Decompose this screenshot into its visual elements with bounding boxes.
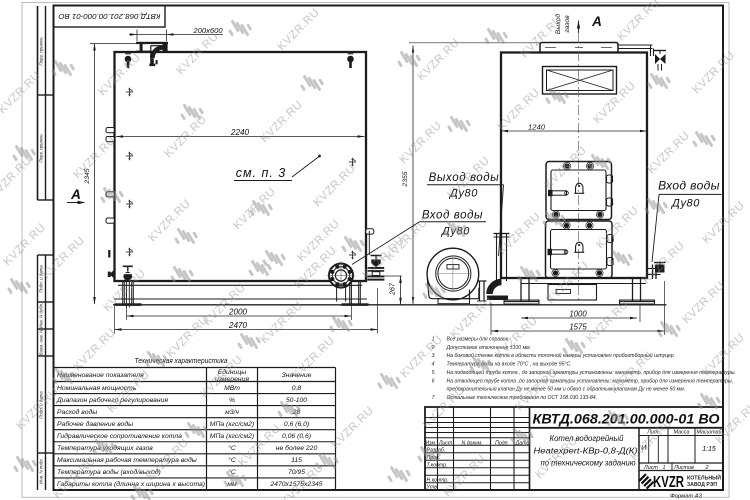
svg-text:Изм.: Изм. <box>425 441 436 447</box>
svg-text:м3/ч: м3/ч <box>225 409 239 416</box>
svg-text:°С: °С <box>228 444 236 452</box>
svg-text:0,06 (0,6): 0,06 (0,6) <box>282 433 311 440</box>
svg-text:газов: газов <box>564 15 571 33</box>
svg-text:1000: 1000 <box>569 310 587 319</box>
svg-text:Вход воды: Вход воды <box>422 210 483 222</box>
svg-text:Инв. N подл.: Инв. N подл. <box>39 458 44 484</box>
svg-text:6: 6 <box>432 378 435 384</box>
svg-text:2470: 2470 <box>228 321 248 330</box>
svg-text:А: А <box>70 187 81 202</box>
svg-text:5: 5 <box>432 370 435 376</box>
svg-text:1:15: 1:15 <box>702 446 716 453</box>
svg-text:Ду80: Ду80 <box>670 198 700 210</box>
svg-text:Перв. примен.: Перв. примен. <box>39 36 44 65</box>
svg-text:Взам. инв. N: Взам. инв. N <box>39 329 44 355</box>
svg-text:70/95: 70/95 <box>288 469 305 476</box>
svg-text:Н.контр.: Н.контр. <box>427 477 449 483</box>
svg-text:2240: 2240 <box>230 128 250 137</box>
svg-text:115: 115 <box>291 457 302 464</box>
svg-text:%: % <box>229 397 235 404</box>
svg-text:2000: 2000 <box>228 308 248 317</box>
svg-text:4: 4 <box>432 362 435 368</box>
svg-text:Гидравлическое сопротивление к: Гидравлическое сопротивление котла <box>57 432 182 440</box>
svg-text:КВТД.068.201.00.000-01 ВО: КВТД.068.201.00.000-01 ВО <box>58 12 160 21</box>
svg-text:N докум.: N докум. <box>462 441 483 447</box>
svg-text:МВт: МВт <box>224 385 240 392</box>
svg-text:KVZR: KVZR <box>653 474 684 491</box>
svg-text:ЗАВОД РЭП: ЗАВОД РЭП <box>687 482 717 488</box>
svg-text:МПа (кгс/см2): МПа (кгс/см2) <box>210 433 254 440</box>
svg-text:267: 267 <box>390 282 397 296</box>
svg-text:предохранительный клапан Ду н: предохранительный клапан Ду не менее 50 … <box>447 386 686 393</box>
svg-text:МПа (кгс/см2): МПа (кгс/см2) <box>210 421 254 428</box>
svg-text:Расход воды: Расход воды <box>57 408 97 416</box>
svg-text:0,6 (6,0): 0,6 (6,0) <box>284 421 309 428</box>
svg-text:Подп. и дата: Подп. и дата <box>39 265 44 293</box>
svg-text:не более 220: не более 220 <box>276 444 318 452</box>
svg-text:Вход воды: Вход воды <box>658 179 720 193</box>
svg-text:На подводящей трубе котла ,: На подводящей трубе котла , до запорной … <box>447 369 736 376</box>
svg-text:Масса: Масса <box>674 430 690 436</box>
svg-text:Утв.: Утв. <box>427 485 439 491</box>
svg-text:Перв. примен.: Перв. примен. <box>39 133 44 162</box>
svg-text:Рабочее давление воды: Рабочее давление воды <box>57 420 133 428</box>
svg-text:1575: 1575 <box>569 323 587 332</box>
svg-text:1240: 1240 <box>528 123 546 132</box>
svg-text:Допустимое отклонение ±100 мм: Допустимое отклонение ±100 мм. <box>446 345 532 351</box>
svg-text:Лист: Лист <box>643 465 658 471</box>
svg-text:200х600: 200х600 <box>192 26 223 35</box>
svg-text:Температура воды на входе 70°: Температура воды на входе 70°С , на выхо… <box>447 362 572 368</box>
svg-text:0,8: 0,8 <box>292 385 302 392</box>
svg-text:Листов: Листов <box>673 465 694 471</box>
svg-text:см. п. 3: см. п. 3 <box>236 166 287 180</box>
svg-text:Формат А3: Формат А3 <box>670 494 702 500</box>
svg-text:Котел водогрейный: Котел водогрейный <box>550 433 624 443</box>
svg-text:2: 2 <box>705 465 709 471</box>
svg-text:Т.контр.: Т.контр. <box>427 462 448 468</box>
svg-text:Подп.: Подп. <box>495 441 509 447</box>
svg-text:Инв. N дубл.: Инв. N дубл. <box>39 303 44 328</box>
svg-text:Heatexpert-КВр-0,8-Д(К): Heatexpert-КВр-0,8-Д(К) <box>534 446 638 456</box>
svg-text:Лист: Лист <box>438 441 453 447</box>
svg-text:КОТЕЛЬНЫЙ: КОТЕЛЬНЫЙ <box>687 474 721 482</box>
svg-text:2355: 2355 <box>402 171 409 187</box>
svg-text:50-100: 50-100 <box>286 397 307 404</box>
svg-text:А: А <box>591 14 602 29</box>
svg-text:На отводящей трубе котла ,до з: На отводящей трубе котла ,до запорной ар… <box>447 377 734 384</box>
svg-text:°С: °С <box>228 456 236 464</box>
svg-text:1: 1 <box>663 465 666 471</box>
